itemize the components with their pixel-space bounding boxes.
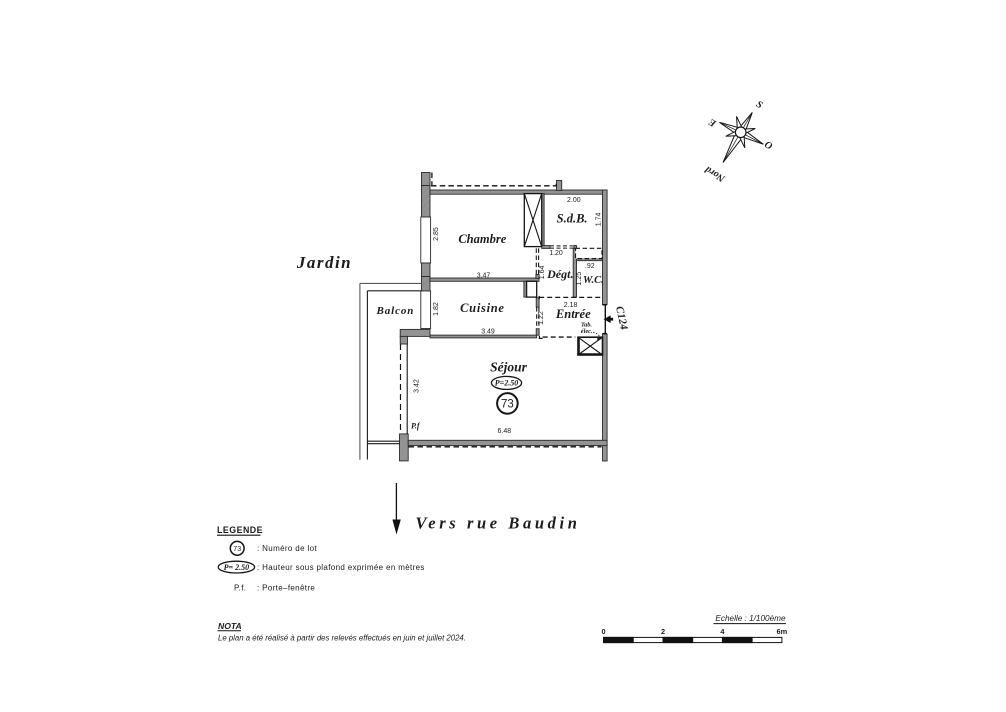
svg-text:0: 0 (601, 627, 605, 636)
svg-text:1.25: 1.25 (576, 272, 583, 286)
svg-text:Balcon: Balcon (376, 305, 415, 317)
svg-text:73: 73 (233, 546, 241, 553)
svg-text:LEGENDE: LEGENDE (217, 525, 263, 535)
svg-text:2.00: 2.00 (567, 197, 581, 204)
svg-text:: Numéro de lot: : Numéro de lot (257, 544, 317, 553)
svg-text:1.22: 1.22 (538, 311, 545, 325)
svg-text:W.C.: W.C. (583, 275, 604, 286)
svg-text:P.f.: P.f. (234, 584, 246, 593)
svg-text:1.20: 1.20 (549, 250, 563, 257)
svg-text:6.48: 6.48 (497, 428, 511, 435)
svg-text:2.85: 2.85 (433, 227, 440, 241)
svg-text:Jardin: Jardin (296, 253, 352, 272)
svg-text:2.18: 2.18 (564, 302, 578, 309)
svg-text:S.d.B.: S.d.B. (557, 212, 588, 226)
svg-text:2: 2 (661, 627, 665, 636)
svg-text:6m: 6m (777, 627, 788, 636)
svg-text:P.f: P.f (411, 422, 421, 431)
svg-text:73: 73 (501, 399, 514, 411)
svg-text:Echelle : 1/100ème: Echelle : 1/100ème (715, 614, 786, 623)
svg-text:1.82: 1.82 (433, 302, 440, 316)
svg-text:Chambre: Chambre (458, 232, 506, 246)
svg-text:Dégt.: Dégt. (546, 267, 573, 281)
svg-text:.92: .92 (585, 263, 595, 270)
svg-text:3.42: 3.42 (413, 379, 420, 393)
svg-text:3.49: 3.49 (481, 329, 495, 336)
svg-text:élec.: élec. (581, 328, 593, 335)
svg-text:1.64: 1.64 (539, 265, 546, 279)
svg-text:P= 2.50: P= 2.50 (224, 563, 249, 572)
svg-text:: Porte–fenêtre: : Porte–fenêtre (257, 584, 315, 593)
svg-text:1.74: 1.74 (596, 212, 603, 226)
svg-text:Entrée: Entrée (555, 307, 591, 321)
svg-text:NOTA: NOTA (218, 621, 242, 631)
svg-text:Séjour: Séjour (490, 360, 528, 375)
svg-text:Le plan a été réalisé à partir: Le plan a été réalisé à partir des relev… (218, 634, 466, 643)
svg-text:Cuisine: Cuisine (460, 301, 505, 315)
svg-text:3.47: 3.47 (477, 272, 491, 279)
svg-text:Vers rue Baudin: Vers rue Baudin (416, 514, 581, 533)
svg-text:P=2.50: P=2.50 (495, 379, 518, 388)
svg-text:: Hauteur sous plafond exp: : Hauteur sous plafond exprimée en mètre… (257, 563, 425, 572)
